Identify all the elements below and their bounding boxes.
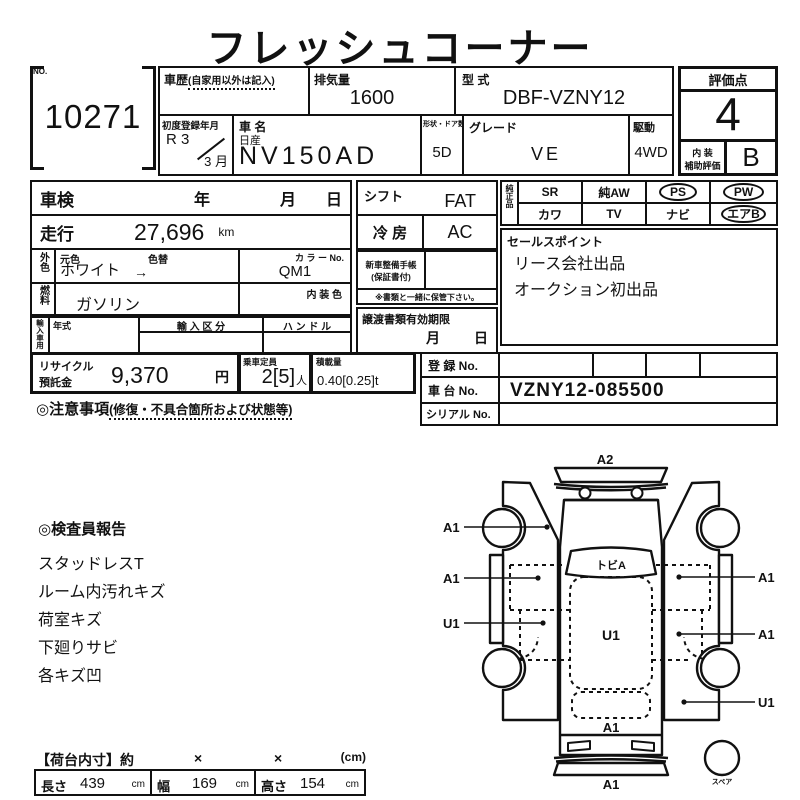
shaken-label: 車検 [40,186,74,211]
option-pw: PW [709,180,778,204]
import-class-cell: 輸 入 区 分 [138,316,264,354]
option-navi: ナビ [645,202,711,226]
transfer-month: 月 [426,328,440,348]
shift-value: FAT [444,191,476,212]
diagram-label-center: U1 [602,627,620,643]
rear-bumper-lip [556,759,666,761]
options-label: 純正品 [504,184,515,226]
diagram-label-a2: A2 [597,452,614,467]
registration-box: 登 録 No. 車 台 No. VZNY12-085500 シリアル No. [420,352,778,426]
interior-color-label: 内 装 色 [240,286,342,301]
recycle-label1: リサイクル [39,358,93,374]
diagram-label-left: U1 [443,616,460,631]
recycle-cell: リサイクル 預託金 9,370 円 [30,352,240,394]
cargo-heading: 【荷台内寸】約 [36,752,134,768]
option-ps: PS [645,180,711,204]
rear-right-wheel [701,649,739,687]
option-kawa: カワ [517,202,583,226]
rear-bumper [554,763,668,775]
color-arrow: → [134,264,148,280]
inspector-item: 下廻りサビ [38,635,166,663]
ext-color-label: 外色 [36,252,51,284]
ac-value-cell: AC [422,214,498,250]
diagram-label-left: A1 [443,571,460,586]
interior-score-row: 内 装 補助評価 B [681,139,775,173]
cargo-width-cell: 幅 169 cm [150,769,256,796]
cargo-height-cell: 高さ 154 cm [254,769,366,796]
headlight-left [580,488,591,499]
displacement-value: 1600 [310,87,434,110]
option-aw: 純AW [581,180,647,204]
model-code-cell: 型 式 DBF-VZNY12 [454,66,674,116]
diagram-label-right: A1 [758,570,775,585]
import-label-cell: 輸入車用 [30,316,50,354]
cargo-length-label: 長さ [41,776,67,795]
reg-no-divider [699,354,701,376]
drive-value: 4WD [630,144,672,161]
cargo-length-value: 439 [80,775,105,792]
load-cell: 積載量 0.40[0.25]t [310,352,416,394]
body-doors-value: 5D [422,144,462,161]
transfer-doc-label: 譲渡書類有効期限 [362,311,450,327]
cargo-height-label: 高さ [261,776,287,795]
history-cell: 車歴(自家用以外は記入) [158,66,310,116]
body-doors-label: 形状・ドア数 [423,119,465,129]
handle-cell: ハ ン ド ル [262,316,352,354]
lot-number-label: NO. [33,67,47,76]
chassis-no-value: VZNY12-085500 [510,380,665,402]
history-label: 車歴 [164,73,188,87]
reg-no-label: 登 録 No. [422,354,500,376]
mileage-row: 走行 27,696 km [30,214,352,250]
score-value: 4 [681,89,775,139]
drive-cell: 駆動 4WD [628,114,674,176]
score-box: 評価点 4 内 装 補助評価 B [678,66,778,176]
mileage-unit: km [218,225,234,239]
sales-point-line: オークション初出品 [514,276,658,300]
cargo-unit-note: (cm) [341,750,366,764]
import-class-label: 輸 入 区 分 [140,318,262,333]
transfer-day: 日 [474,328,488,348]
option-airbag: エアB [709,202,778,226]
service-book-cell: 新車整備手帳 (保証書付) [356,250,426,290]
tail-light-right [632,741,654,751]
ac-label-cell: 冷 房 [356,214,424,250]
capacity-value: 2[5] [262,366,295,389]
sales-points-box: セールスポイント リース会社出品 オークション初出品 [500,228,778,346]
color-value: ホワイト [60,259,120,280]
first-registration-label: 初度登録年月 [162,118,219,132]
tail-light-left [568,741,590,751]
front-right-wheel [701,509,739,547]
cargo-width-label: 幅 [157,776,170,795]
model-code-label: 型 式 [462,71,489,88]
first-registration-month: 3 月 [204,151,228,170]
inspector-report: ◎検査員報告 スタッドレスT ルーム内汚れキズ 荷室キズ 下廻りサビ 各キズ凹 [38,518,166,691]
import-year-cell: 年式 [48,316,140,354]
load-label: 積載量 [316,356,342,368]
shaken-year: 年 [194,186,210,210]
fuel-value-cell: ガソリン [54,282,240,316]
spare-tire-label: スペア [712,778,733,786]
recycle-value: 9,370 [111,362,169,389]
shaken-row: 車検 年 月 日 [30,180,352,216]
color-no-value: QM1 [240,263,350,280]
option-sr: SR [517,180,583,204]
cargo-width-value: 169 [192,775,217,792]
front-bumper-lip [554,484,668,487]
shift-cell: シフト FAT [356,180,498,216]
lot-number-box: NO. 10271 [30,66,156,170]
cargo-height-unit: cm [346,779,359,790]
inspector-heading: ◎検査員報告 [38,518,166,539]
serial-no-label: シリアル No. [422,404,500,424]
color-no-cell: カ ラ ー No. QM1 [238,248,352,284]
ac-label: 冷 房 [358,216,422,248]
import-label: 輸入車用 [35,319,46,353]
diagram-label-right: A1 [758,627,775,642]
sales-point-line: リース会社出品 [514,250,625,274]
chassis-no-label: 車 台 No. [422,378,500,402]
load-value: 0.40[0.25]t [317,373,378,388]
times-sign: × [194,750,202,766]
shaken-month: 月 [280,186,296,210]
ext-color-label-cell: 外色 [30,248,56,284]
shaken-day: 日 [326,186,342,210]
capacity-cell: 乗車定員 2[5] 人 [238,352,312,394]
rear-left-wheel [483,649,521,687]
fuel-label: 燃料 [36,285,51,315]
option-tv: TV [581,202,647,226]
diagram-label-windshield: トビA [596,558,626,572]
service-book-value-cell [424,250,498,290]
interior-score-label: 内 装 補助評価 [681,142,727,173]
notes-heading: ◎注意事項(修復・不具合箇所および状態等) [36,398,292,419]
cargo-height-value: 154 [300,775,325,792]
body-doors-cell: 形状・ドア数 5D [420,114,464,176]
sales-points-label: セールスポイント [507,233,603,250]
displacement-cell: 排気量 1600 [308,66,456,116]
recolor-label: 色替 [148,251,168,266]
notes-note: (修復・不具合箇所および状態等) [109,403,292,420]
car-diagram: A2 トビA U1 A1 A1 A1 A1 U1 A1 A1 U1 スペア [440,450,790,795]
inspector-item: スタッドレスT [38,551,166,579]
left-sill-strip [490,555,503,643]
cargo-width-unit: cm [236,779,249,790]
service-book-label2: (保証書付) [358,271,424,283]
front-left-wheel [483,509,521,547]
import-year-label: 年式 [53,319,71,332]
diagram-label-rear: A1 [603,720,620,735]
cargo-length-cell: 長さ 439 cm [34,769,152,796]
car-name-cell: 車 名 日産 NV150AD [232,114,422,176]
mileage-label: 走行 [40,220,74,245]
reg-no-divider [645,354,647,376]
recycle-unit: 円 [215,367,229,387]
fuel-label-cell: 燃料 [30,282,56,316]
inspector-item: ルーム内汚れキズ [38,579,166,607]
notes-title: ◎注意事項 [36,401,109,418]
ac-value: AC [424,216,496,248]
diagram-label-left: A1 [443,520,460,535]
grade-value: VE [464,144,628,165]
displacement-label: 排気量 [314,71,350,88]
cargo-length-unit: cm [132,779,145,790]
interior-score-value: B [727,142,775,173]
mileage-value: 27,696 [134,219,204,246]
color-cell: 元色 色替 ホワイト → [54,248,240,284]
model-code-value: DBF-VZNY12 [456,87,672,110]
capacity-unit: 人 [296,372,307,388]
front-bumper [555,468,667,482]
rear-bumper-lip [554,756,668,759]
handle-label: ハ ン ド ル [264,318,350,333]
car-name-value: NV150AD [239,142,378,171]
recycle-label2: 預託金 [39,374,72,390]
diagram-label-right: U1 [758,695,775,710]
transfer-doc-cell: 譲渡書類有効期限 月 日 [356,307,498,354]
spare-tire-circle [705,741,739,775]
auction-sheet: フレッシュコーナー NO. 10271 車歴(自家用以外は記入) 排気量 160… [0,0,800,800]
service-book-label: 新車整備手帳 [358,259,424,271]
fuel-value: ガソリン [76,291,140,315]
cargo-dims-heading: 【荷台内寸】約 × × (cm) [36,750,366,770]
inspector-item: 荷室キズ [38,607,166,635]
reg-no-divider [592,354,594,376]
diagram-label-bottom: A1 [603,777,620,792]
interior-color-cell: 内 装 色 [238,282,352,316]
drive-label: 駆動 [633,119,655,135]
lot-number-value: 10271 [30,98,156,136]
grade-label: グレード [469,119,517,136]
first-registration-cell: 初度登録年月 R 3 3 月 [158,114,234,176]
service-book-note: ※書類と一緒に保管下さい。 [358,292,496,303]
right-sill-strip [719,555,732,643]
inspector-item: 各キズ凹 [38,663,166,691]
grade-cell: グレード VE [462,114,630,176]
times-sign: × [274,750,282,766]
service-book-note-cell: ※書類と一緒に保管下さい。 [356,288,498,305]
first-registration-era: R 3 [166,131,189,148]
headlight-right [632,488,643,499]
history-note: (自家用以外は記入) [188,76,275,90]
shift-label: シフト [364,186,403,205]
